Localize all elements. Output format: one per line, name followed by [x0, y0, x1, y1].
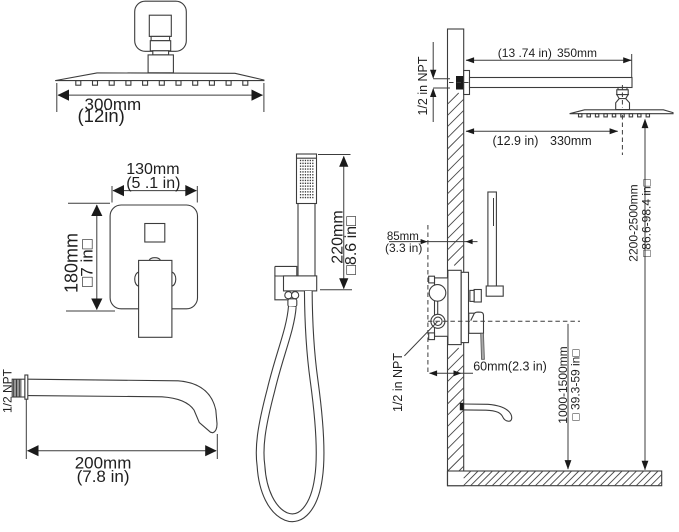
svg-text:(7.8 in): (7.8 in)	[77, 467, 130, 486]
svg-text:330mm: 330mm	[550, 134, 592, 148]
svg-text:1/2 in NPT: 1/2 in NPT	[391, 353, 405, 412]
svg-text:□8.6 in□: □8.6 in□	[343, 216, 360, 275]
svg-text:(12.9 in): (12.9 in)	[493, 134, 539, 148]
svg-text:350mm: 350mm	[557, 46, 597, 60]
svg-text:1/2 NPT: 1/2 NPT	[1, 368, 15, 413]
svg-text:(3.3 in): (3.3 in)	[385, 241, 422, 255]
svg-text:(5 .1 in): (5 .1 in)	[126, 175, 180, 192]
svg-text:□7 in□: □7 in□	[78, 239, 97, 287]
svg-text:□ 39.3-59 in□: □ 39.3-59 in□	[569, 349, 583, 420]
svg-text:60mm(2.3 in): 60mm(2.3 in)	[473, 359, 547, 373]
svg-text:(13 .74 in): (13 .74 in)	[498, 46, 552, 60]
svg-text:1/2 in NPT: 1/2 in NPT	[416, 56, 430, 115]
svg-text:(12in): (12in)	[78, 105, 125, 126]
svg-text:□86.6-98.4 in□: □86.6-98.4 in□	[639, 179, 653, 257]
